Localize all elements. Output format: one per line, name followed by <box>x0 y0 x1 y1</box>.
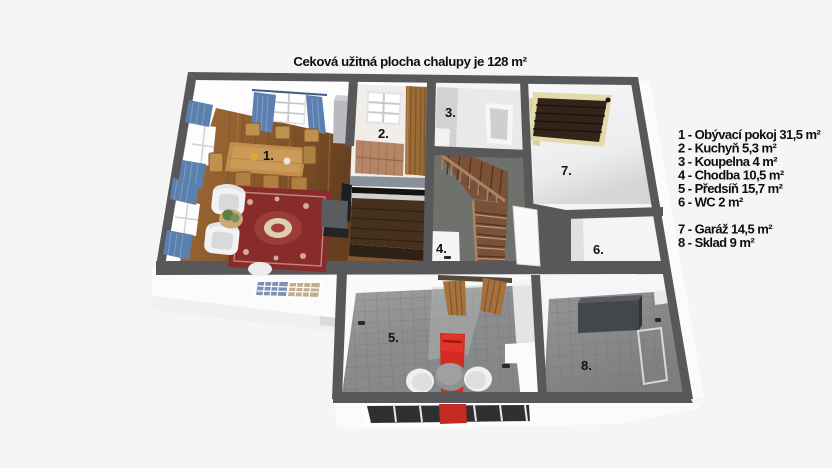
svg-text:3.: 3. <box>445 105 456 120</box>
svg-text:2.: 2. <box>378 126 389 141</box>
svg-text:6.: 6. <box>593 242 604 257</box>
svg-text:8.: 8. <box>581 358 592 373</box>
svg-text:8 - Sklad 9 m²: 8 - Sklad 9 m² <box>678 235 755 250</box>
svg-text:6 - WC 2 m²: 6 - WC 2 m² <box>678 195 744 210</box>
svg-text:5.: 5. <box>388 330 399 345</box>
svg-text:7.: 7. <box>561 163 572 178</box>
svg-text:1.: 1. <box>263 148 274 163</box>
svg-text:Ceková užitná plocha chalupy j: Ceková užitná plocha chalupy je 128 m² <box>293 54 527 69</box>
svg-text:4.: 4. <box>436 241 447 256</box>
